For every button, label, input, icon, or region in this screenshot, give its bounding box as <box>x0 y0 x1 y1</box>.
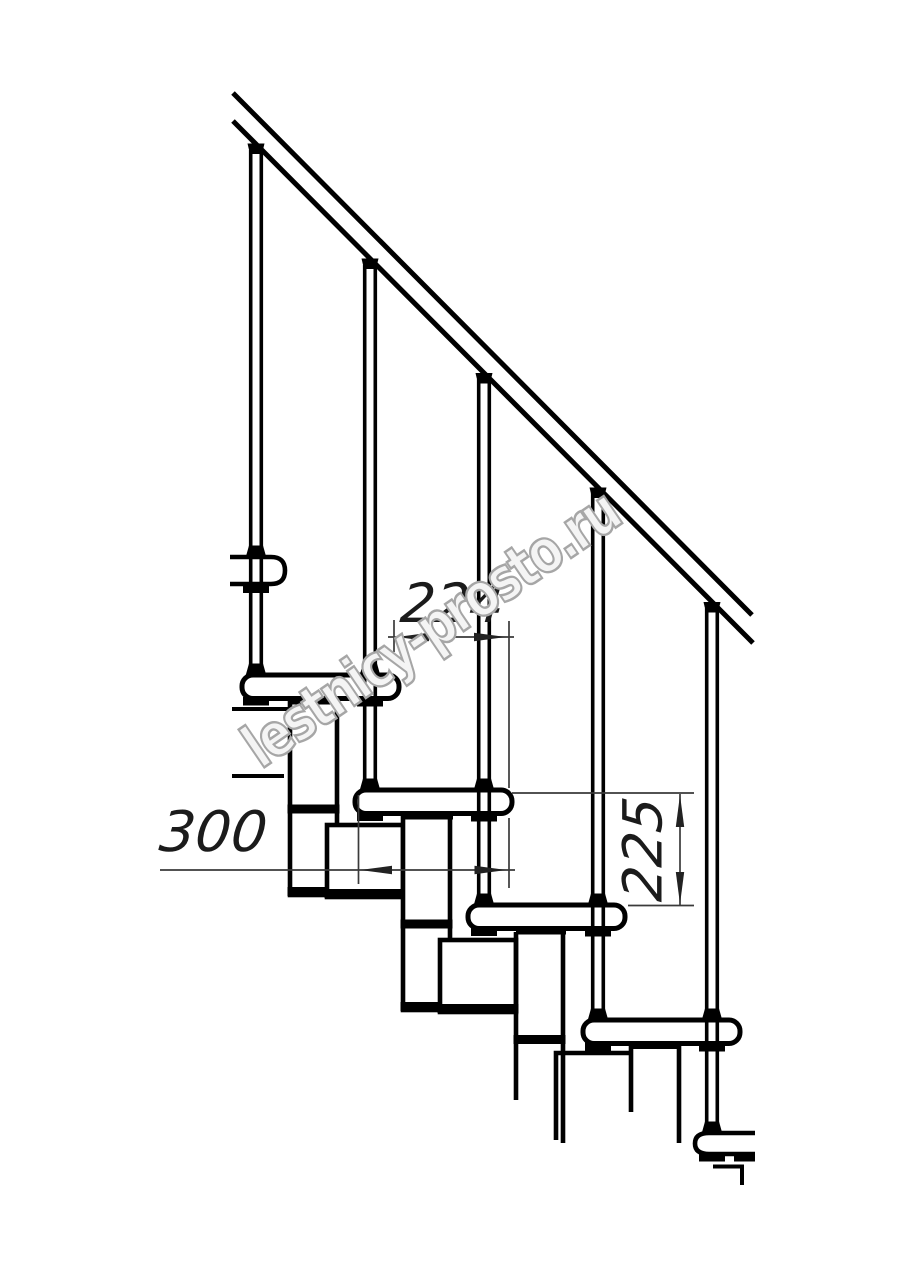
baluster-foot <box>702 1122 723 1135</box>
mount-nut <box>585 1043 611 1052</box>
baluster-1 <box>246 144 267 677</box>
mount-plate <box>734 1153 755 1162</box>
mount-plate <box>403 812 453 820</box>
tread-3 <box>468 905 625 929</box>
tread-0-nose-stub <box>230 557 285 584</box>
floor-cut-line <box>713 1167 742 1186</box>
baluster-cap <box>704 602 721 613</box>
baluster-flare <box>588 894 609 907</box>
mount-plate <box>516 927 566 935</box>
baluster-5 <box>702 602 723 1134</box>
tread-5-nose-stub <box>695 1133 755 1154</box>
baluster-cap <box>248 144 265 155</box>
baluster-flare <box>474 779 495 792</box>
mount-nut <box>471 928 497 937</box>
mount-nut <box>699 1153 725 1162</box>
dimension-label-300: 300 <box>157 800 266 865</box>
dimension-label-225: 225 <box>612 794 675 904</box>
mount-collar <box>585 928 611 937</box>
module-tube-4 <box>631 1043 679 1143</box>
baluster-flare <box>246 546 267 559</box>
baluster-cap <box>476 373 493 384</box>
baluster-flare <box>702 1009 723 1022</box>
mount-nut <box>357 813 383 822</box>
mount-collar <box>699 1043 725 1052</box>
baluster-foot <box>246 664 267 677</box>
module-box-4 <box>556 1053 631 1140</box>
module-box-2 <box>325 825 406 898</box>
baluster-4 <box>588 488 609 1022</box>
mount-collar <box>471 813 497 822</box>
baluster-foot <box>474 894 495 907</box>
baluster-foot <box>588 1009 609 1022</box>
mount-collar <box>243 584 269 593</box>
module-box-3 <box>438 940 519 1013</box>
staircase-drawing-page: 224 300 225 lestnicy-prosto.ru <box>0 0 914 1280</box>
baluster-foot <box>360 779 381 792</box>
baluster-cap <box>362 259 379 270</box>
mount-plate <box>631 1042 679 1050</box>
